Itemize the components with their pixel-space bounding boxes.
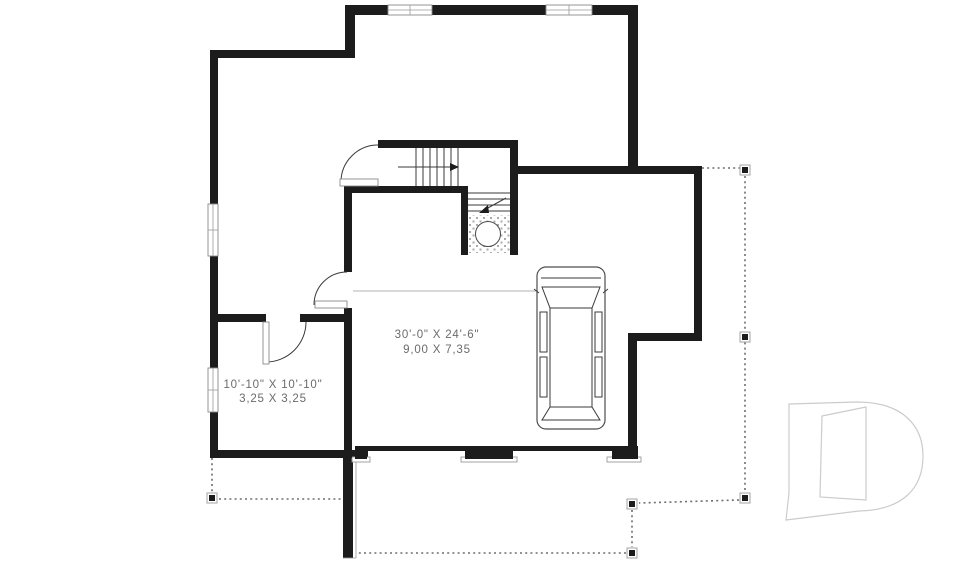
porch-post: [740, 493, 750, 503]
garage-dimension-metric: 9,00 X 7,35: [403, 344, 471, 356]
garage-front-wall: [352, 446, 641, 462]
car-icon: [534, 267, 608, 429]
porch-post: [740, 165, 750, 175]
garage-dimension-imperial: 30'-0" X 24'-6": [395, 329, 480, 341]
exterior-walls: [210, 5, 702, 558]
window: [388, 5, 432, 15]
floor-plan-drawing: 30'-0" X 24'-6" 9,00 X 7,35 10'-10" X 10…: [0, 0, 960, 569]
garage-door-pier: [607, 446, 641, 462]
porch-post: [740, 332, 750, 342]
doors: [263, 145, 378, 364]
utility-area: [468, 215, 510, 253]
porch-post: [627, 548, 637, 558]
porch-post: [207, 493, 217, 503]
door-garage-to-room: [314, 272, 347, 308]
window: [208, 368, 218, 412]
window: [546, 5, 592, 15]
stair-lower-run: [468, 193, 510, 213]
storage-dimension-metric: 3,25 X 3,25: [239, 393, 307, 405]
storage-dimension-imperial: 10'-10" X 10'-10": [223, 379, 322, 391]
door-stair-hall: [340, 145, 378, 186]
porch-post: [627, 499, 637, 509]
water-heater-icon: [476, 222, 501, 247]
garage-door-pier: [461, 446, 517, 462]
floor-plan-page: 30'-0" X 24'-6" 9,00 X 7,35 10'-10" X 10…: [0, 0, 960, 569]
stair-direction-arrow: [479, 205, 489, 213]
window: [208, 204, 218, 256]
drummond-logo-icon: [786, 402, 923, 520]
stair-upper-run: [398, 148, 459, 186]
staircase: [398, 148, 510, 213]
door-storage-room: [263, 322, 306, 364]
